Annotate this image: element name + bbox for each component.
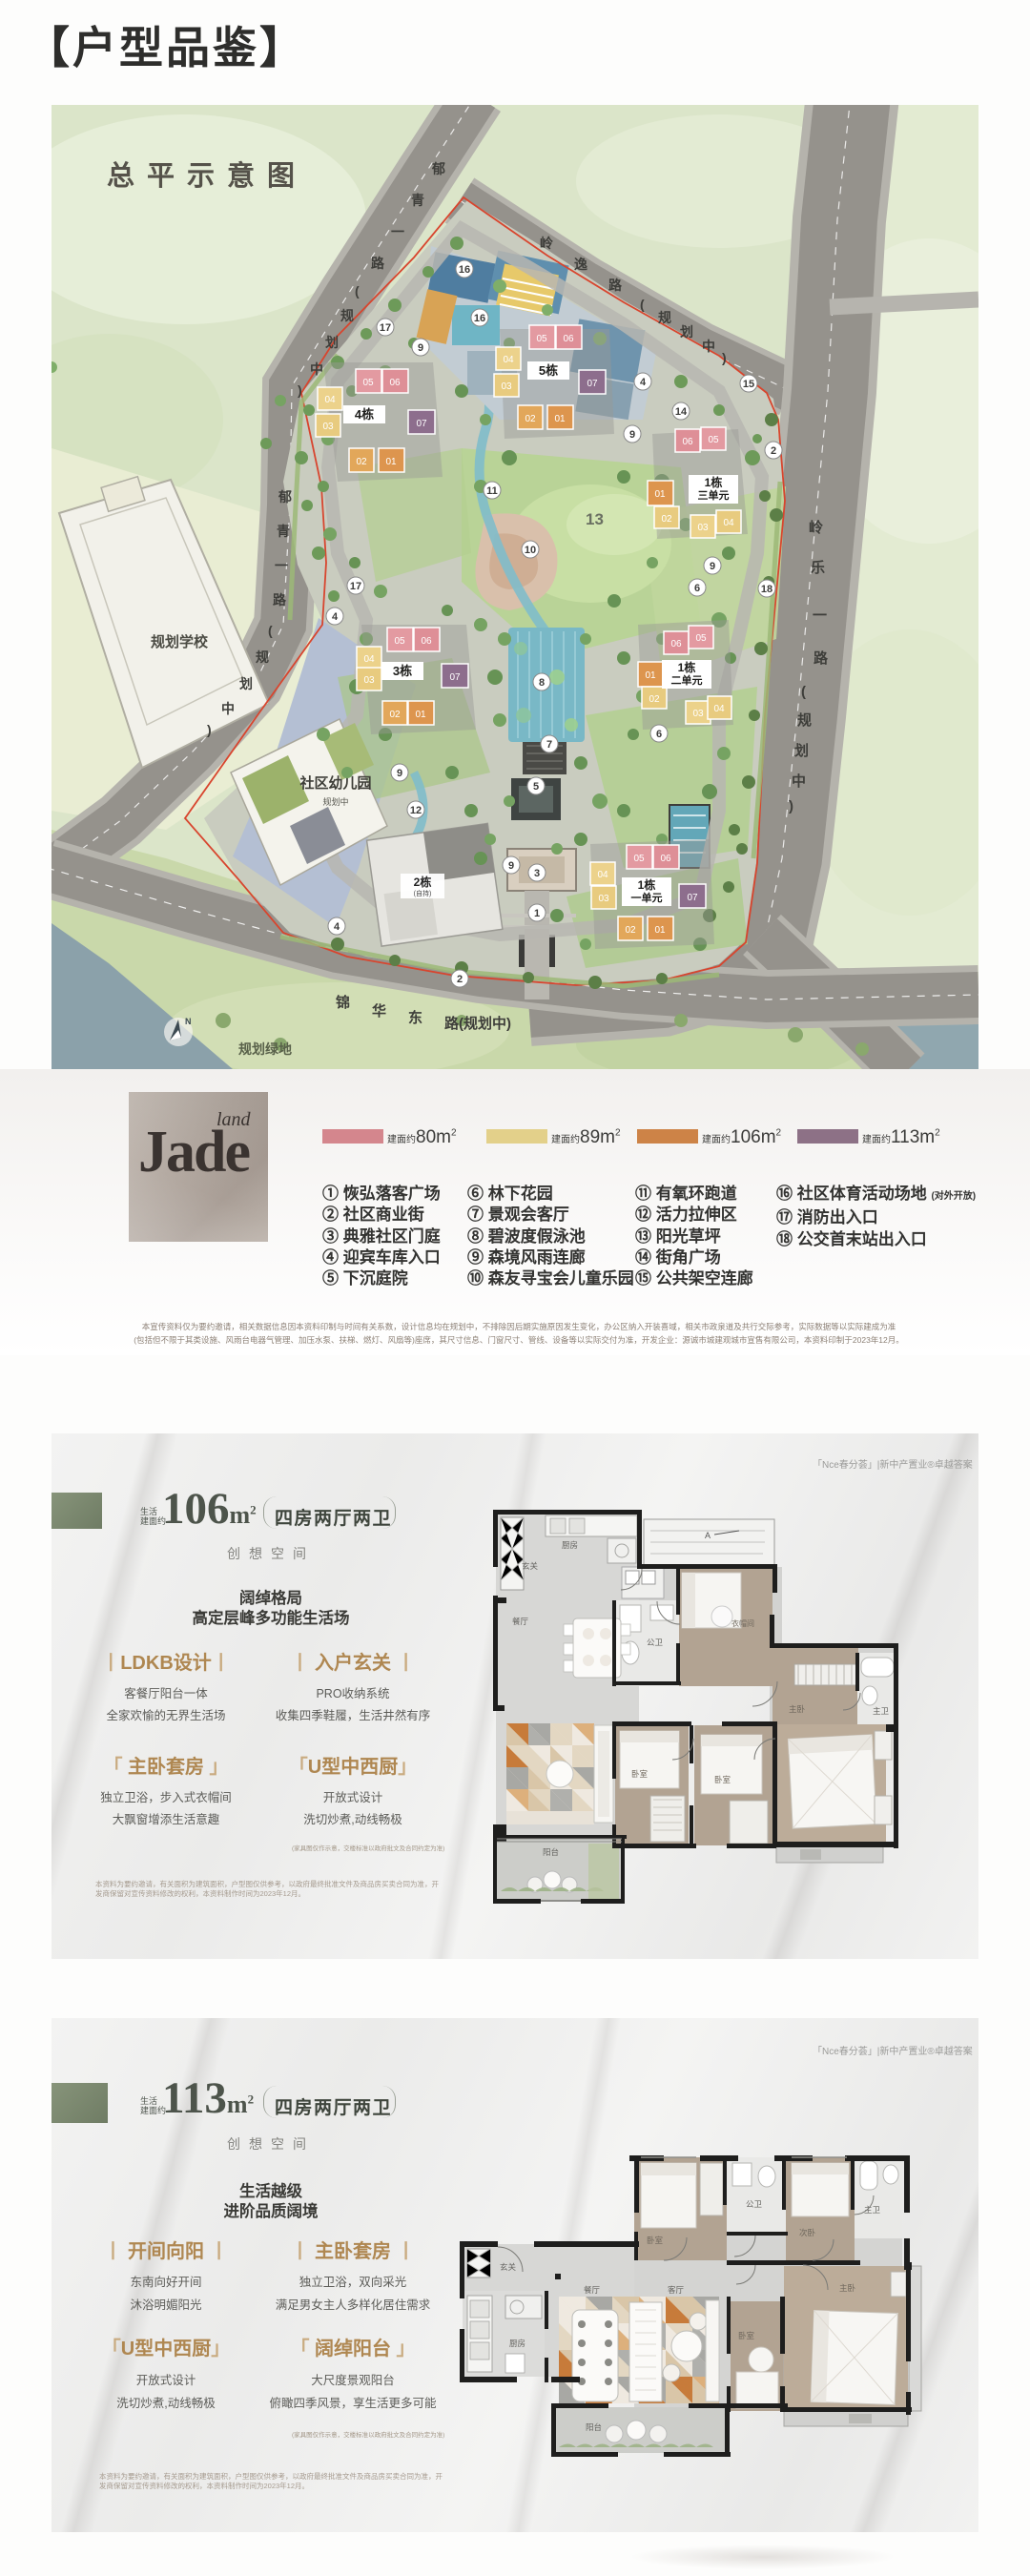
svg-text:): )	[298, 382, 302, 398]
svg-text:9: 9	[710, 561, 715, 572]
svg-text:03: 03	[501, 381, 512, 392]
svg-text:规: 规	[797, 712, 812, 729]
svg-text:一单元: 一单元	[631, 891, 663, 904]
svg-text:05: 05	[394, 636, 405, 647]
svg-text:锦: 锦	[336, 994, 350, 1011]
svg-text:社区幼儿园: 社区幼儿园	[299, 774, 371, 792]
svg-text:): )	[722, 350, 727, 365]
svg-text:N: N	[185, 1017, 192, 1026]
svg-text:02: 02	[356, 457, 367, 467]
svg-text:岭: 岭	[540, 236, 553, 251]
svg-text:03: 03	[697, 523, 709, 533]
svg-text:3: 3	[534, 868, 540, 879]
svg-text:1栋: 1栋	[705, 475, 723, 489]
svg-text:03: 03	[363, 675, 375, 686]
svg-text:A: A	[705, 1531, 711, 1540]
svg-text:华: 华	[372, 1002, 386, 1020]
svg-text:规划绿地: 规划绿地	[238, 1041, 292, 1057]
svg-text:8: 8	[539, 677, 545, 689]
svg-text:客厅: 客厅	[668, 2285, 685, 2295]
svg-text:规划中: 规划中	[322, 796, 348, 807]
svg-text:餐厅: 餐厅	[584, 2285, 601, 2295]
svg-text:9: 9	[508, 860, 514, 872]
svg-text:公卫: 公卫	[647, 1638, 664, 1647]
svg-text:中: 中	[792, 773, 806, 790]
svg-text:04: 04	[723, 518, 734, 528]
svg-text:划: 划	[239, 676, 253, 691]
svg-text:中: 中	[702, 339, 715, 354]
svg-text:路: 路	[273, 592, 287, 608]
svg-text:三单元: 三单元	[698, 488, 730, 502]
svg-text:2: 2	[457, 974, 463, 985]
svg-text:): )	[789, 798, 793, 814]
svg-text:01: 01	[385, 457, 397, 467]
svg-text:07: 07	[687, 893, 698, 903]
svg-text:规: 规	[658, 310, 671, 325]
svg-text:03: 03	[598, 894, 609, 904]
svg-text:9: 9	[418, 342, 423, 354]
svg-text:逸: 逸	[574, 257, 587, 272]
svg-text:二单元: 二单元	[671, 673, 703, 687]
svg-text:02: 02	[525, 414, 536, 424]
svg-text:(: (	[355, 283, 360, 299]
svg-text:10: 10	[525, 545, 536, 556]
svg-text:18: 18	[761, 584, 772, 595]
svg-text:次卧: 次卧	[799, 2228, 816, 2237]
svg-text:一: 一	[275, 558, 288, 573]
svg-text:05: 05	[633, 854, 645, 864]
svg-text:01: 01	[654, 925, 666, 936]
svg-text:岭: 岭	[809, 519, 823, 536]
svg-text:04: 04	[503, 355, 514, 365]
svg-text:9: 9	[397, 768, 402, 779]
svg-text:衣帽间: 衣帽间	[731, 1618, 754, 1628]
svg-text:05: 05	[536, 334, 547, 344]
svg-text:02: 02	[661, 514, 672, 525]
svg-text:卧室: 卧室	[631, 1769, 649, 1779]
svg-text:16: 16	[474, 313, 485, 324]
svg-text:4: 4	[640, 377, 647, 388]
svg-text:路: 路	[814, 649, 829, 667]
svg-text:01: 01	[554, 414, 566, 424]
svg-text:卧室: 卧室	[738, 2331, 755, 2340]
svg-text:07: 07	[449, 672, 461, 683]
svg-text:02: 02	[625, 925, 636, 936]
svg-text:02: 02	[649, 694, 660, 705]
svg-text:06: 06	[670, 639, 682, 649]
svg-text:卧室: 卧室	[714, 1775, 731, 1784]
svg-text:玄关: 玄关	[500, 2262, 517, 2272]
svg-text:04: 04	[363, 654, 375, 665]
svg-text:17: 17	[380, 322, 391, 334]
svg-text:4: 4	[334, 921, 340, 933]
svg-text:中: 中	[310, 361, 323, 377]
svg-text:04: 04	[597, 870, 608, 880]
svg-text:1栋: 1栋	[638, 877, 656, 892]
svg-text:1: 1	[534, 908, 540, 919]
svg-text:07: 07	[587, 379, 598, 389]
svg-text:13: 13	[586, 510, 604, 528]
svg-text:06: 06	[389, 378, 401, 388]
svg-text:划: 划	[680, 324, 693, 340]
svg-text:06: 06	[682, 437, 693, 447]
svg-text:划: 划	[794, 742, 809, 759]
svg-text:06: 06	[421, 636, 432, 647]
svg-text:主卧: 主卧	[789, 1704, 806, 1714]
svg-text:12: 12	[410, 805, 422, 816]
svg-text:11: 11	[486, 485, 498, 497]
svg-text:规: 规	[256, 649, 269, 665]
svg-text:路: 路	[608, 278, 623, 293]
svg-text:16: 16	[459, 264, 470, 276]
svg-text:2: 2	[771, 445, 776, 457]
svg-text:1栋: 1栋	[678, 660, 696, 674]
svg-text:中: 中	[221, 701, 235, 716]
svg-text:06: 06	[660, 854, 671, 864]
svg-text:(: (	[640, 297, 645, 312]
svg-text:一: 一	[391, 224, 404, 239]
svg-text:4: 4	[332, 611, 339, 623]
svg-text:青: 青	[411, 193, 424, 208]
svg-text:厨房: 厨房	[562, 1540, 578, 1550]
svg-text:05: 05	[708, 435, 719, 445]
svg-text:14: 14	[675, 406, 688, 418]
svg-text:乐: 乐	[811, 559, 825, 576]
svg-text:青: 青	[277, 524, 290, 539]
svg-text:路: 路	[371, 256, 385, 271]
svg-text:03: 03	[692, 709, 704, 719]
svg-text:6: 6	[656, 729, 662, 740]
svg-text:04: 04	[713, 704, 725, 714]
svg-text:(: (	[801, 684, 806, 700]
svg-text:(自持): (自持)	[414, 889, 432, 897]
svg-text:规: 规	[340, 308, 354, 323]
svg-text:总平示意图: 总平示意图	[107, 159, 307, 192]
svg-text:6: 6	[694, 583, 700, 594]
svg-text:(: (	[268, 623, 273, 638]
svg-text:厨房: 厨房	[509, 2339, 525, 2348]
svg-text:阳台: 阳台	[586, 2422, 602, 2432]
svg-text:03: 03	[322, 422, 334, 432]
svg-text:2栋: 2栋	[414, 875, 432, 889]
svg-text:划: 划	[325, 335, 339, 350]
svg-text:05: 05	[362, 378, 374, 388]
svg-text:05: 05	[695, 633, 707, 644]
svg-text:主卧: 主卧	[839, 2283, 856, 2293]
svg-text:06: 06	[563, 334, 574, 344]
svg-text:9: 9	[629, 429, 635, 441]
svg-text:01: 01	[645, 670, 656, 681]
svg-text:一: 一	[813, 608, 827, 624]
svg-text:郁: 郁	[431, 161, 445, 176]
svg-text:07: 07	[416, 419, 427, 429]
svg-text:路(规划中): 路(规划中)	[444, 1015, 511, 1032]
svg-text:01: 01	[654, 489, 666, 500]
svg-text:玄关: 玄关	[522, 1561, 539, 1571]
svg-text:公卫: 公卫	[746, 2199, 763, 2209]
svg-text:东: 东	[408, 1009, 422, 1026]
svg-text:04: 04	[324, 395, 336, 405]
svg-text:4栋: 4栋	[355, 407, 374, 422]
svg-text:15: 15	[743, 379, 754, 390]
svg-text:01: 01	[415, 710, 426, 720]
svg-text:17: 17	[350, 581, 361, 592]
svg-text:02: 02	[389, 710, 401, 720]
svg-text:卧室: 卧室	[647, 2236, 664, 2245]
svg-text:5: 5	[533, 781, 539, 793]
svg-text:餐厅: 餐厅	[512, 1617, 529, 1626]
svg-text:7: 7	[546, 739, 552, 751]
svg-text:): )	[207, 722, 212, 737]
svg-text:3栋: 3栋	[393, 664, 412, 678]
svg-text:郁: 郁	[278, 489, 292, 505]
svg-text:主卫: 主卫	[873, 1706, 890, 1716]
svg-text:规划学校: 规划学校	[151, 633, 209, 650]
svg-text:5栋: 5栋	[539, 363, 558, 378]
svg-text:阳台: 阳台	[543, 1847, 559, 1857]
